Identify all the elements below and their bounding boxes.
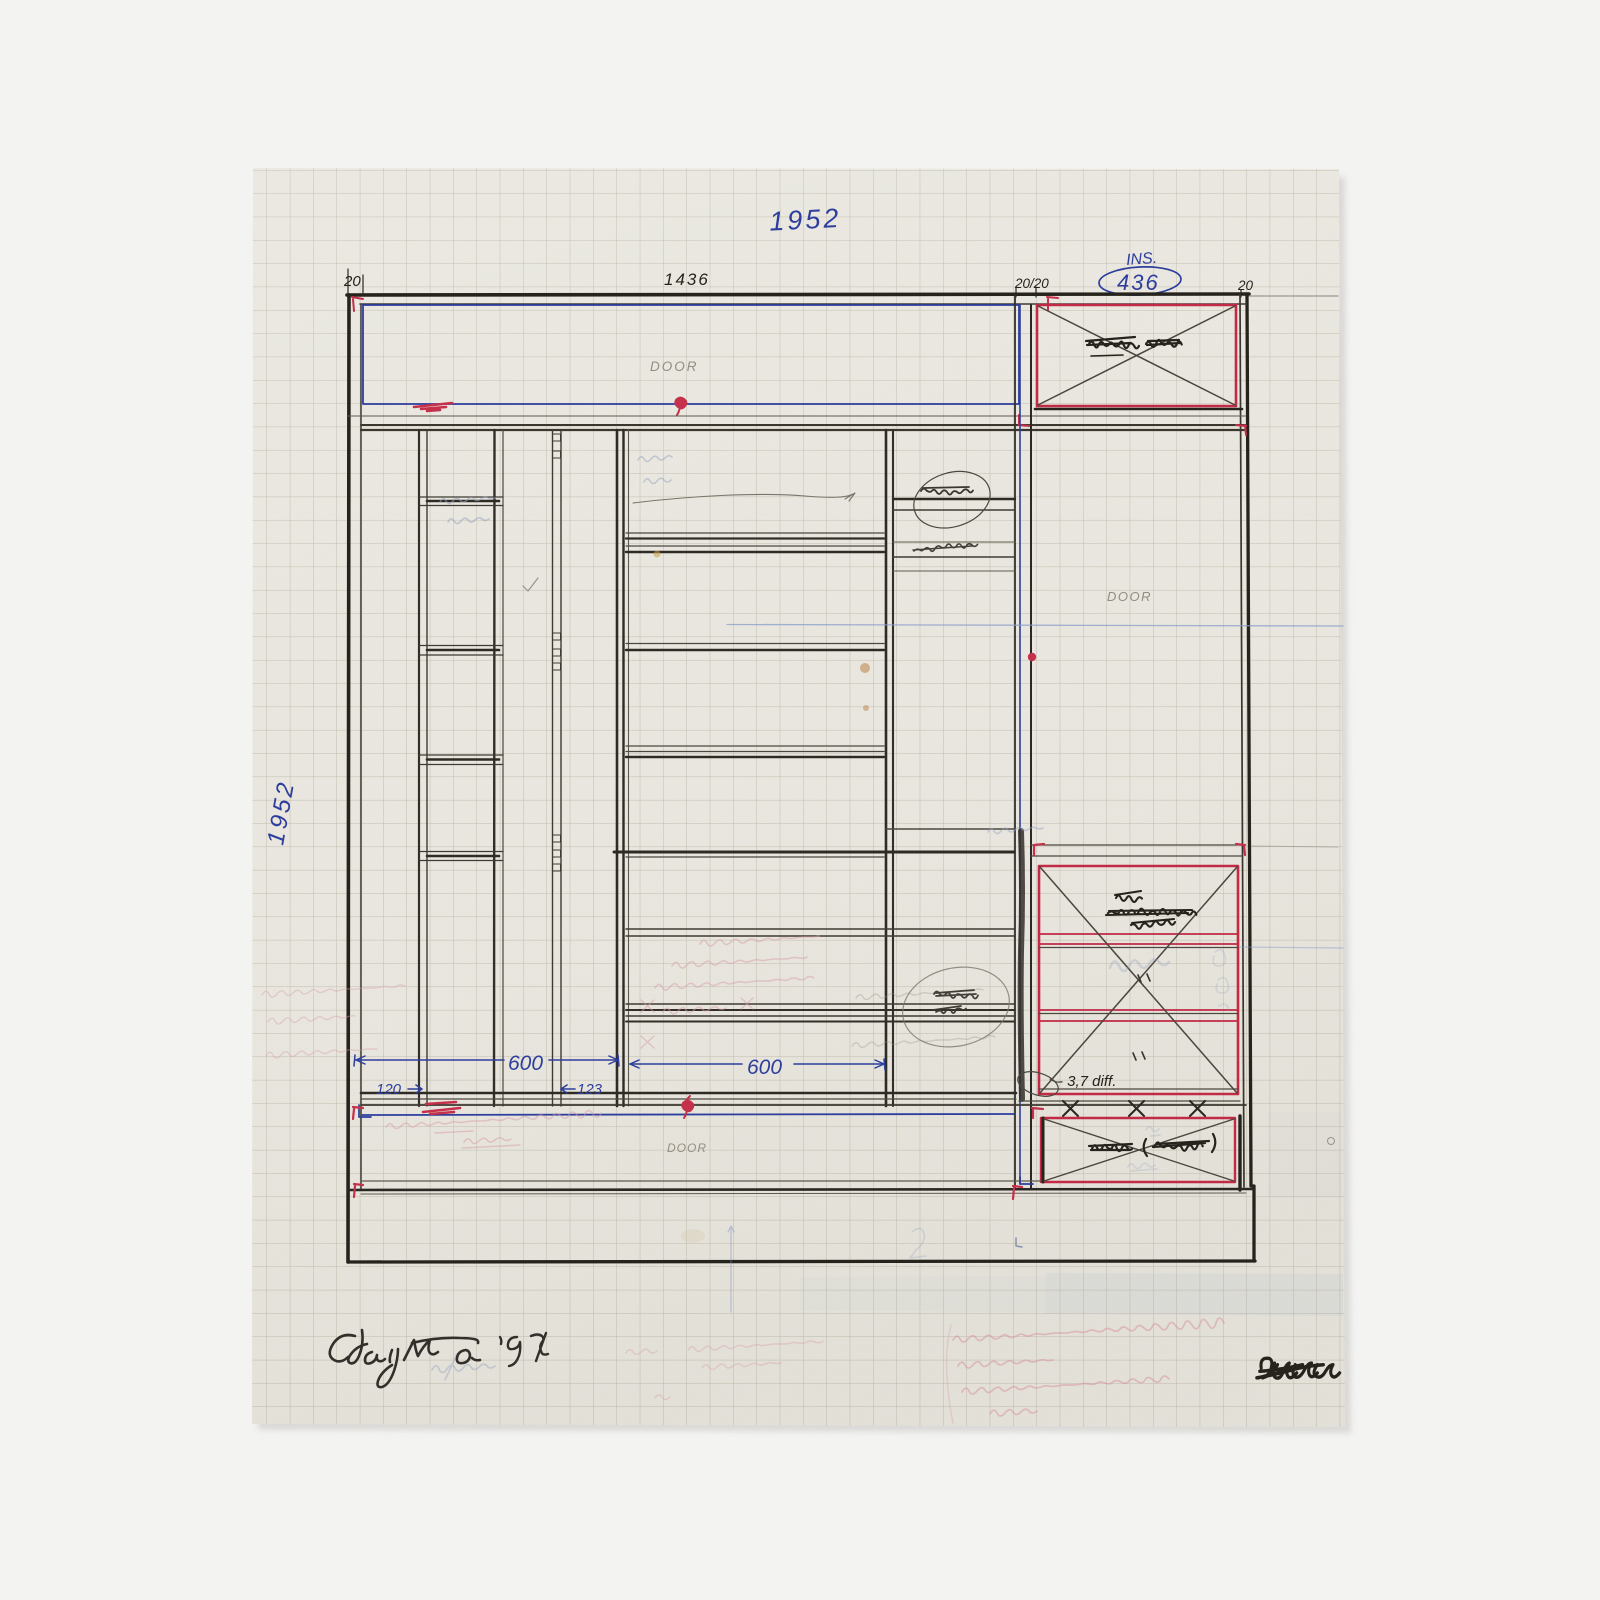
svg-text:20: 20 [343, 273, 361, 290]
svg-text:20/20: 20/20 [1014, 276, 1049, 291]
svg-text:436: 436 [1117, 270, 1160, 295]
svg-text:600: 600 [747, 1056, 782, 1079]
svg-text:123: 123 [577, 1081, 603, 1098]
svg-text:DOOR: DOOR [667, 1141, 707, 1155]
svg-text:600: 600 [508, 1052, 543, 1075]
svg-text:1952: 1952 [769, 203, 843, 237]
svg-text:DOOR: DOOR [650, 359, 699, 374]
svg-text:DOOR: DOOR [1107, 589, 1152, 604]
svg-text:1436: 1436 [664, 270, 710, 289]
svg-text:20: 20 [1237, 278, 1254, 293]
svg-text:- 3,7 diff.: - 3,7 diff. [1058, 1073, 1116, 1090]
svg-text:120: 120 [376, 1081, 402, 1098]
